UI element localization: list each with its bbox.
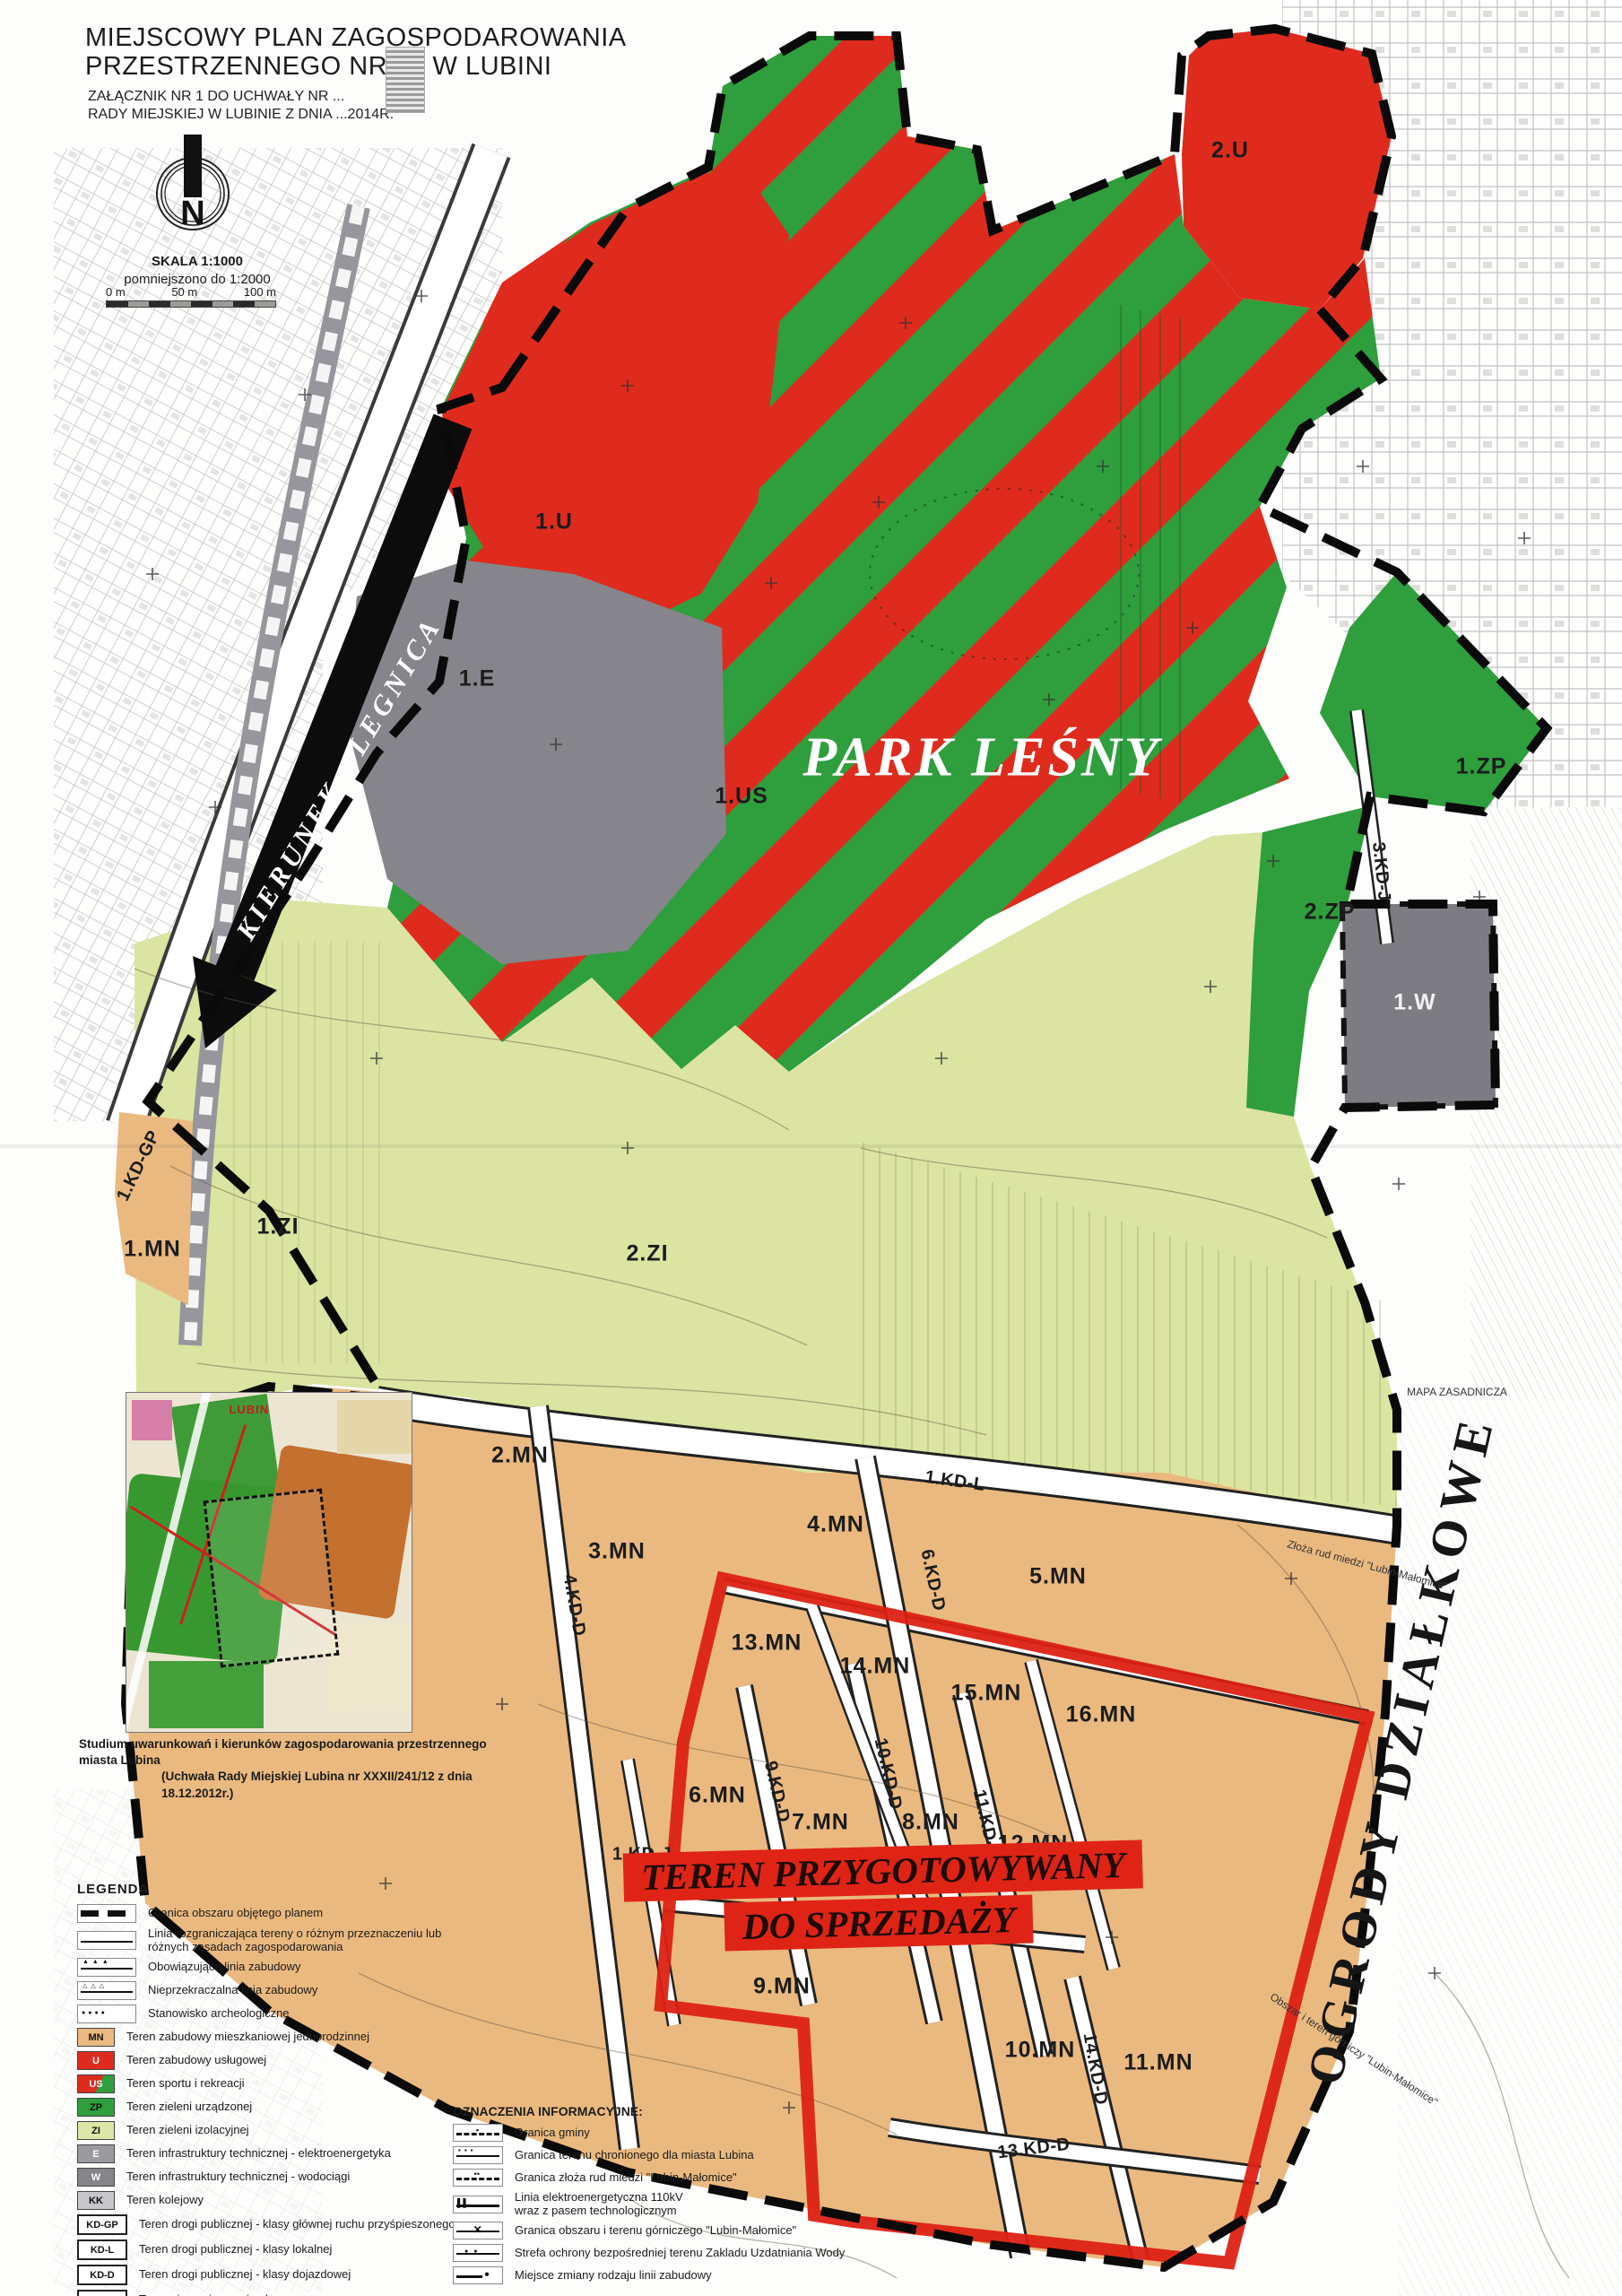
zone-swatch-mn: MN [77,2028,115,2047]
legend-item: USTeren sportu i rekreacji [77,2074,507,2093]
legend-item: Linia rozgraniczająca tereny o różnym pr… [77,1927,507,1953]
legend-heading: LEGENDA [77,1882,507,1897]
page-subtitle: ZAŁĄCZNIK NR 1 DO UCHWAŁY NR ... RADY MI… [88,88,394,124]
zone-swatch-w: W [77,2168,115,2187]
thin-line-swatch [77,1931,136,1950]
zone-swatch-zi: ZI [77,2121,115,2140]
scale-bar-segments [106,300,276,308]
chroniony-info-swatch [453,2146,503,2164]
legend-zone-items: MNTeren zabudowy mieszkaniowej jednorodz… [77,2028,507,2210]
legend-item-label: Teren zabudowy mieszkaniowej jednorodzin… [126,2031,369,2044]
scale-ticks: 0 m 50 m 100 m [106,285,276,299]
legend-item: Nieprzekraczalna linia zabudowy [77,1981,507,2000]
road-swatch-kd-gp: KD-GP [77,2214,127,2235]
legend-item-label: Linia rozgraniczająca tereny o różnym pr… [148,1927,481,1953]
inset-city-label: LUBIN [229,1403,269,1416]
subtitle-line-2: RADY MIEJSKIEJ W LUBINIE Z DNIA ...2014R… [88,106,394,124]
legend-item: MNTeren zabudowy mieszkaniowej jednorodz… [77,2028,507,2047]
legend-item-label: Teren zieleni izolacyjnej [126,2124,249,2137]
legend-item: Granica terenu chronionego dla miasta Lu… [453,2146,1027,2164]
legend-item-label: Granica gminy [515,2126,590,2140]
legend-item-label: Linia elektroenergetyczna 110kVwraz z pa… [515,2191,683,2217]
legend-road-items: KD-GPTeren drogi publicznej - klasy głów… [77,2214,507,2296]
paper-fold-line [0,1144,1622,1148]
info-legend-heading: OZNACZENIA INFORMACYJNE: [453,2104,1027,2118]
legend-item: Granica złoża rud miedzi "Lubin-Małomice… [453,2169,1027,2187]
zone-swatch-kk: KK [77,2191,115,2210]
legend-item-label: Obowiązująca linia zabudowy [148,1961,301,1974]
north-arrow-icon: N [143,133,242,249]
obow-line-swatch [77,1958,136,1977]
inset-caption: Studium uwarunkowań i kierunków zagospod… [79,1736,527,1802]
page-title: MIEJSCOWY PLAN ZAGOSPODAROWANIA PRZESTRZ… [85,23,627,82]
inset-caption-line-2: (Uchwała Rady Miejskiej Lubina nr XXXII/… [161,1769,527,1801]
inset-field-area [326,1623,412,1711]
legend-item-label: Teren infrastruktury technicznej - elekt… [126,2147,391,2161]
legend-item: KD-GPTeren drogi publicznej - klasy głów… [77,2214,507,2235]
legend-item: Miejsce zmiany rodzaju linii zabudowy [453,2266,1027,2284]
legend-item-label: Miejsce zmiany rodzaju linii zabudowy [515,2269,712,2283]
studium-inset-map: LUBIN [126,1392,412,1733]
arch-line-swatch [77,2005,136,2023]
zone-swatch-e: E [77,2144,115,2163]
title-line-1: MIEJSCOWY PLAN ZAGOSPODAROWANIA [85,23,627,52]
legend-line-items: Granica obszaru objętego planemLinia roz… [77,1904,507,2023]
zone-1w-gray [1342,904,1496,1108]
legend-item: KKTeren kolejowy [77,2191,507,2210]
road-swatch-kd-l: KD-L [77,2239,127,2260]
info-item-label-2: wraz z pasem technologicznym [515,2205,683,2218]
legend-item: Granica gminy [453,2124,1027,2142]
scale-text: SKALA 1:1000 pomniejszono do 1:2000 [99,253,296,288]
inset-plan-boundary [204,1489,340,1668]
north-letter: N [180,195,204,232]
linia110-info-swatch [453,2196,503,2213]
legend-item: ZITeren zieleni izolacyjnej [77,2121,507,2140]
legend-item-label: Teren infrastruktury technicznej - wodoc… [126,2170,350,2184]
strefa-info-swatch [453,2244,503,2262]
legend-item-label: Teren sportu i rekreacji [126,2077,245,2091]
zmiana-info-swatch [453,2266,503,2284]
scan-stamp [386,47,425,113]
legend-item-label: Granica obszaru objętego planem [148,1907,323,1920]
legend-item: ETeren infrastruktury technicznej - elek… [77,2144,507,2163]
legend-item: Linia elektroenergetyczna 110kVwraz z pa… [453,2191,1027,2217]
gmina-info-swatch [453,2124,503,2142]
legend-item-label: Stanowisko archeologiczne [148,2007,290,2021]
legend-item: Strefa ochrony bezpośredniej terenu Zakl… [453,2244,1027,2262]
zloze-info-swatch [453,2169,503,2187]
legend-item-label: Granica złoża rud miedzi "Lubin-Małomice… [515,2171,737,2185]
legend-item: ZPTeren zieleni urządzonej [77,2098,507,2117]
inset-zone-patch [132,1400,172,1440]
legend-item-label: Strefa ochrony bezpośredniej terenu Zakl… [515,2247,845,2260]
scale-tick-0: 0 m [106,285,126,299]
legend-item: WTeren infrastruktury technicznej - wodo… [77,2168,507,2187]
legend-item: KD-DTeren drogi publicznej - klasy dojaz… [77,2265,507,2285]
subtitle-line-1: ZAŁĄCZNIK NR 1 DO UCHWAŁY NR ... [88,88,394,106]
gornicza-info-swatch [453,2222,503,2239]
legend-item-label: Teren kolejowy [126,2194,204,2207]
inset-caption-line-1: Studium uwarunkowań i kierunków zagospod… [79,1736,527,1769]
inset-green-area [149,1661,263,1729]
zone-swatch-u: U [77,2051,115,2070]
zone-swatch-zp: ZP [77,2098,115,2117]
boundary-line-swatch [77,1904,136,1923]
nieprz-line-swatch [77,1981,136,2000]
legend-item: KD-JTeren ciągu pieszo - jezdnego [77,2290,507,2296]
legend-item-label: Nieprzekraczalna linia zabudowy [148,1984,317,1997]
legend-item-label: Teren zieleni urządzonej [126,2100,252,2114]
scale-tick-50: 50 m [171,285,197,299]
legend-item: UTeren zabudowy usługowej [77,2051,507,2070]
legend-item: Obowiązująca linia zabudowy [77,1958,507,1977]
title-line-2: PRZESTRZENNEGO NR 55 W LUBINI [85,52,627,81]
road-swatch-kd-j: KD-J [77,2290,127,2296]
legend-item-label: Teren drogi publicznej - klasy dojazdowe… [139,2268,351,2282]
scale-tick-100: 100 m [244,285,276,299]
info-legend: OZNACZENIA INFORMACYJNE: Granica gminyGr… [453,2104,1027,2284]
legend-item-label: Granica obszaru i terenu górniczego "Lub… [515,2224,796,2238]
map-sheet: MIEJSCOWY PLAN ZAGOSPODAROWANIA PRZESTRZ… [0,0,1622,2296]
road-swatch-kd-d: KD-D [77,2265,127,2285]
scale-bar: 0 m 50 m 100 m [106,285,276,308]
scanned-plan-page: { "header": { "title1": "MIEJSCOWY PLAN … [0,0,1622,2296]
legend-item: Stanowisko archeologiczne [77,2005,507,2023]
inset-field-area [337,1400,412,1454]
legend-item-label: Teren zabudowy usługowej [126,2054,266,2067]
legend-item: Granica obszaru objętego planem [77,1904,507,1923]
legend: LEGENDA Granica obszaru objętego planemL… [77,1882,507,2296]
legend-item-label: Teren drogi publicznej - klasy lokalnej [139,2243,332,2257]
info-legend-items: Granica gminyGranica terenu chronionego … [453,2124,1027,2284]
legend-item-label: Granica terenu chronionego dla miasta Lu… [515,2149,754,2162]
legend-item: KD-LTeren drogi publicznej - klasy lokal… [77,2239,507,2260]
scale-line-1: SKALA 1:1000 [99,253,296,271]
legend-item-label: Teren drogi publicznej - klasy głównej r… [139,2218,455,2231]
legend-item: Granica obszaru i terenu górniczego "Lub… [453,2222,1027,2239]
zone-swatch-us: US [77,2074,115,2093]
